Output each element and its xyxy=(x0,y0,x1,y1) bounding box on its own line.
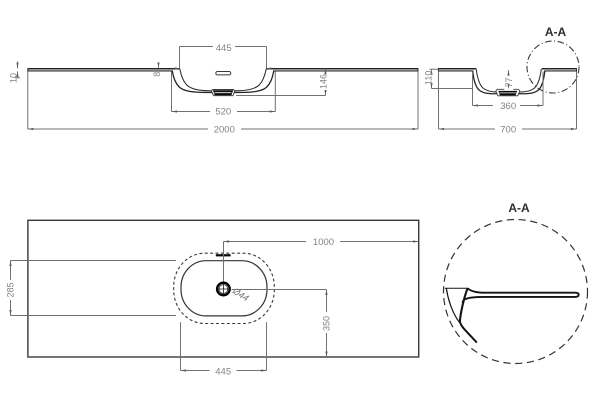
svg-text:A-A: A-A xyxy=(508,201,530,215)
svg-text:A-A: A-A xyxy=(545,25,567,39)
svg-text:110: 110 xyxy=(424,71,434,85)
svg-text:8: 8 xyxy=(152,72,162,77)
svg-text:445: 445 xyxy=(215,366,231,377)
svg-text:360: 360 xyxy=(500,101,516,112)
svg-text:1000: 1000 xyxy=(313,237,334,248)
svg-text:445: 445 xyxy=(216,43,232,54)
svg-text:10: 10 xyxy=(9,73,19,83)
svg-text:2000: 2000 xyxy=(214,125,235,136)
svg-text:146: 146 xyxy=(318,74,328,89)
svg-text:77: 77 xyxy=(504,77,514,87)
svg-text:350: 350 xyxy=(322,316,332,331)
svg-text:285: 285 xyxy=(6,282,16,297)
svg-text:700: 700 xyxy=(500,125,516,136)
svg-text:520: 520 xyxy=(215,106,231,117)
